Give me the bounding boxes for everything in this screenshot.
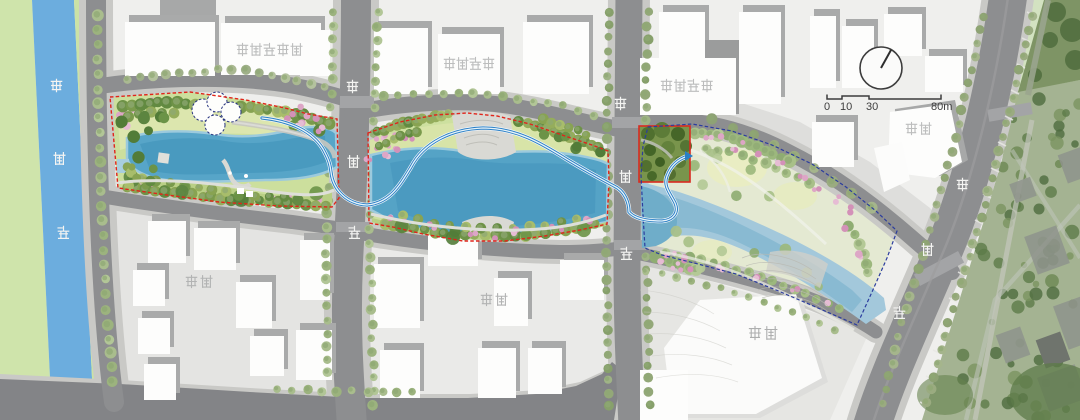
svg-text:80m: 80m (931, 101, 952, 113)
svg-text:30: 30 (866, 101, 878, 113)
svg-text:0: 0 (824, 101, 830, 113)
svg-text:10: 10 (840, 101, 852, 113)
